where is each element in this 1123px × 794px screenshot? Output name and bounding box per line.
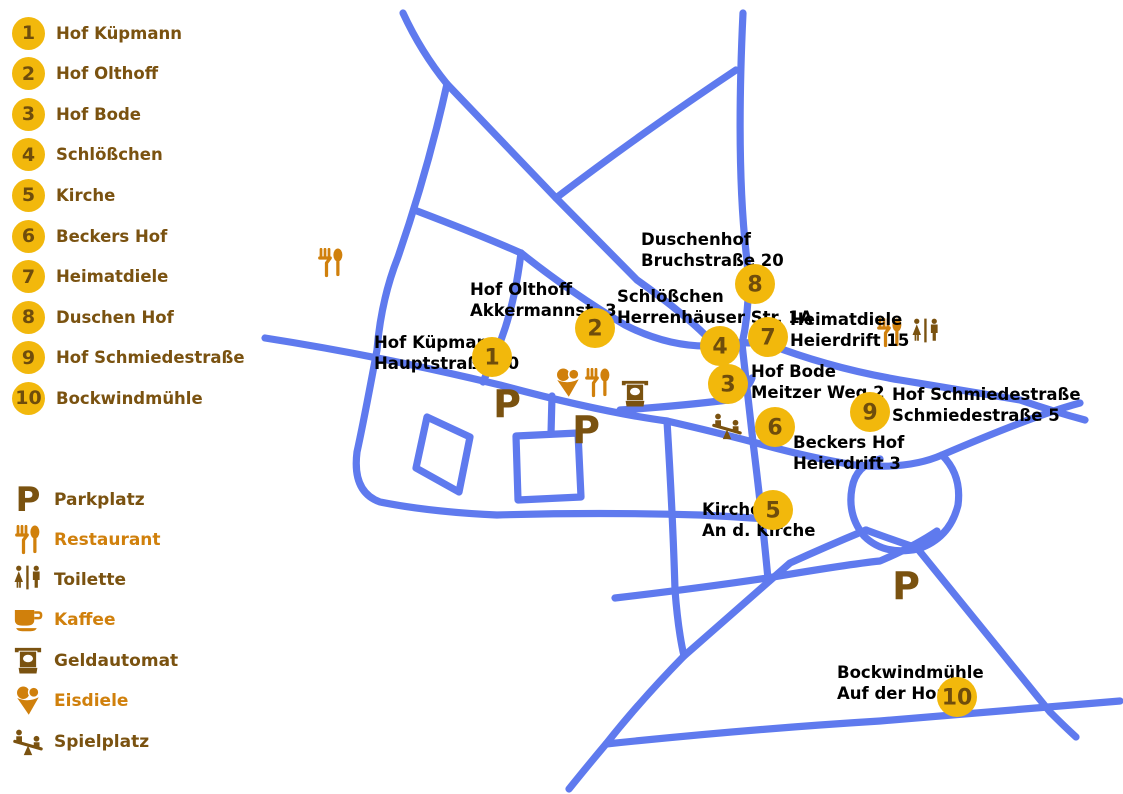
legend-item-geldautomat: Geldautomat	[10, 643, 178, 679]
marker-number: 9	[862, 401, 877, 426]
list-item-9: 9Hof Schmiedestraße	[12, 341, 245, 375]
playground-icon	[10, 724, 46, 760]
road-segment-17	[606, 701, 1120, 744]
list-item-8: 8Duschen Hof	[12, 300, 174, 334]
road-segment-0	[403, 13, 447, 84]
atm-icon	[10, 643, 46, 679]
list-item-label: Bockwindmühle	[56, 389, 203, 408]
legend-label: Spielplatz	[54, 732, 149, 752]
list-item-10: 10Bockwindmühle	[12, 381, 203, 415]
legend-label: Restaurant	[54, 530, 161, 550]
marker-number: 2	[587, 317, 602, 342]
marker-number: 6	[767, 416, 782, 441]
list-item-7: 7Heimatdiele	[12, 260, 168, 294]
restaurant-icon	[10, 522, 46, 558]
map-marker-6[interactable]: 6	[755, 407, 795, 447]
list-item-label: Kirche	[56, 186, 115, 205]
restaurant-icon	[320, 249, 343, 277]
map-marker-7[interactable]: 7	[748, 317, 788, 357]
map-marker-1[interactable]: 1	[472, 337, 512, 377]
legend-label: Geldautomat	[54, 651, 178, 671]
legend-item-spielplatz: Spielplatz	[10, 724, 149, 760]
marker-number: 5	[765, 499, 780, 524]
list-item-label: Hof Schmiedestraße	[56, 348, 245, 367]
list-number-badge: 6	[12, 220, 45, 253]
legend-item-restaurant: Restaurant	[10, 522, 161, 558]
map-label-7: Hof SchmiedestraßeSchmiedestraße 5	[892, 385, 1081, 425]
map-marker-3[interactable]: 3	[708, 364, 748, 404]
road-segment-10	[667, 421, 684, 656]
legend-item-kaffee: Kaffee	[10, 602, 115, 638]
legend-label: Parkplatz	[54, 490, 145, 510]
list-number-badge: 7	[12, 260, 45, 293]
list-number-badge: 5	[12, 179, 45, 212]
restaurant-icon	[17, 526, 40, 554]
map-label-2: SchlößchenHerrenhäuser Str. 1A	[617, 287, 813, 327]
map-labels-layer: Hof KüpmannHauptstraße 70Hof OlthoffAkke…	[374, 230, 1081, 703]
marker-number: 1	[484, 346, 499, 371]
map-marker-2[interactable]: 2	[575, 308, 615, 348]
coffee-icon	[10, 602, 46, 638]
town-map-page: PPP Hof KüpmannHauptstraße 70Hof Olthoff…	[0, 0, 1123, 794]
list-item-6: 6Beckers Hof	[12, 219, 167, 253]
map-marker-10[interactable]: 10	[937, 677, 977, 717]
road-segment-18	[416, 417, 470, 492]
parking-mark: P	[493, 382, 521, 426]
marker-number: 4	[712, 335, 727, 360]
legend-item-eisdiele: Eisdiele	[10, 683, 128, 719]
legend-item-parkplatz: PParkplatz	[10, 482, 145, 518]
legend-label: Eisdiele	[54, 691, 128, 711]
list-number-badge: 9	[12, 341, 45, 374]
map-label-3: DuschenhofBruchstraße 20	[641, 230, 784, 270]
toilet-icon	[10, 562, 46, 598]
icecream-icon	[17, 687, 39, 715]
legend-item-toilette: Toilette	[10, 562, 126, 598]
marker-number: 10	[942, 686, 973, 711]
icecream-icon	[557, 369, 579, 397]
list-item-label: Hof Küpmann	[56, 24, 182, 43]
list-item-5: 5Kirche	[12, 178, 115, 212]
list-item-label: Heimatdiele	[56, 267, 168, 286]
map-label-4: HeimatdieleHeierdrift 15	[790, 310, 909, 350]
list-number-badge: 3	[12, 98, 45, 131]
list-item-4: 4Schlößchen	[12, 138, 163, 172]
list-item-label: Duschen Hof	[56, 308, 174, 327]
icecream-icon	[10, 683, 46, 719]
coffee-icon	[15, 610, 41, 631]
map-marker-4[interactable]: 4	[700, 326, 740, 366]
toilet-icon	[913, 319, 938, 343]
map-marker-8[interactable]: 8	[735, 264, 775, 304]
parking-icon: P	[10, 482, 46, 518]
atm-icon	[15, 648, 41, 674]
list-item-label: Schlößchen	[56, 145, 163, 164]
list-number-badge: 2	[12, 57, 45, 90]
road-segment-2	[556, 70, 736, 198]
list-number-badge: 1	[12, 17, 45, 50]
list-item-2: 2Hof Olthoff	[12, 57, 158, 91]
toilet-icon	[15, 566, 40, 590]
restaurant-icon	[587, 369, 610, 397]
legend-label: Toilette	[54, 570, 126, 590]
atm-icon	[622, 381, 648, 407]
parking-glyph: P	[16, 483, 41, 517]
marker-number: 8	[747, 273, 762, 298]
map-marker-5[interactable]: 5	[753, 490, 793, 530]
road-segment-6	[417, 211, 521, 253]
road-segment-20	[551, 396, 552, 434]
list-item-3: 3Hof Bode	[12, 97, 141, 131]
list-number-badge: 10	[12, 382, 45, 415]
playground-icon	[15, 730, 41, 756]
list-number-badge: 4	[12, 138, 45, 171]
parking-mark: P	[572, 408, 600, 452]
legend-label: Kaffee	[54, 610, 115, 630]
marker-number: 7	[760, 326, 775, 351]
list-item-label: Beckers Hof	[56, 227, 167, 246]
list-item-1: 1Hof Küpmann	[12, 16, 182, 50]
map-marker-9[interactable]: 9	[850, 392, 890, 432]
marker-number: 3	[720, 373, 735, 398]
list-number-badge: 8	[12, 301, 45, 334]
parking-mark: P	[892, 564, 920, 608]
list-item-label: Hof Bode	[56, 105, 141, 124]
list-item-label: Hof Olthoff	[56, 64, 158, 83]
